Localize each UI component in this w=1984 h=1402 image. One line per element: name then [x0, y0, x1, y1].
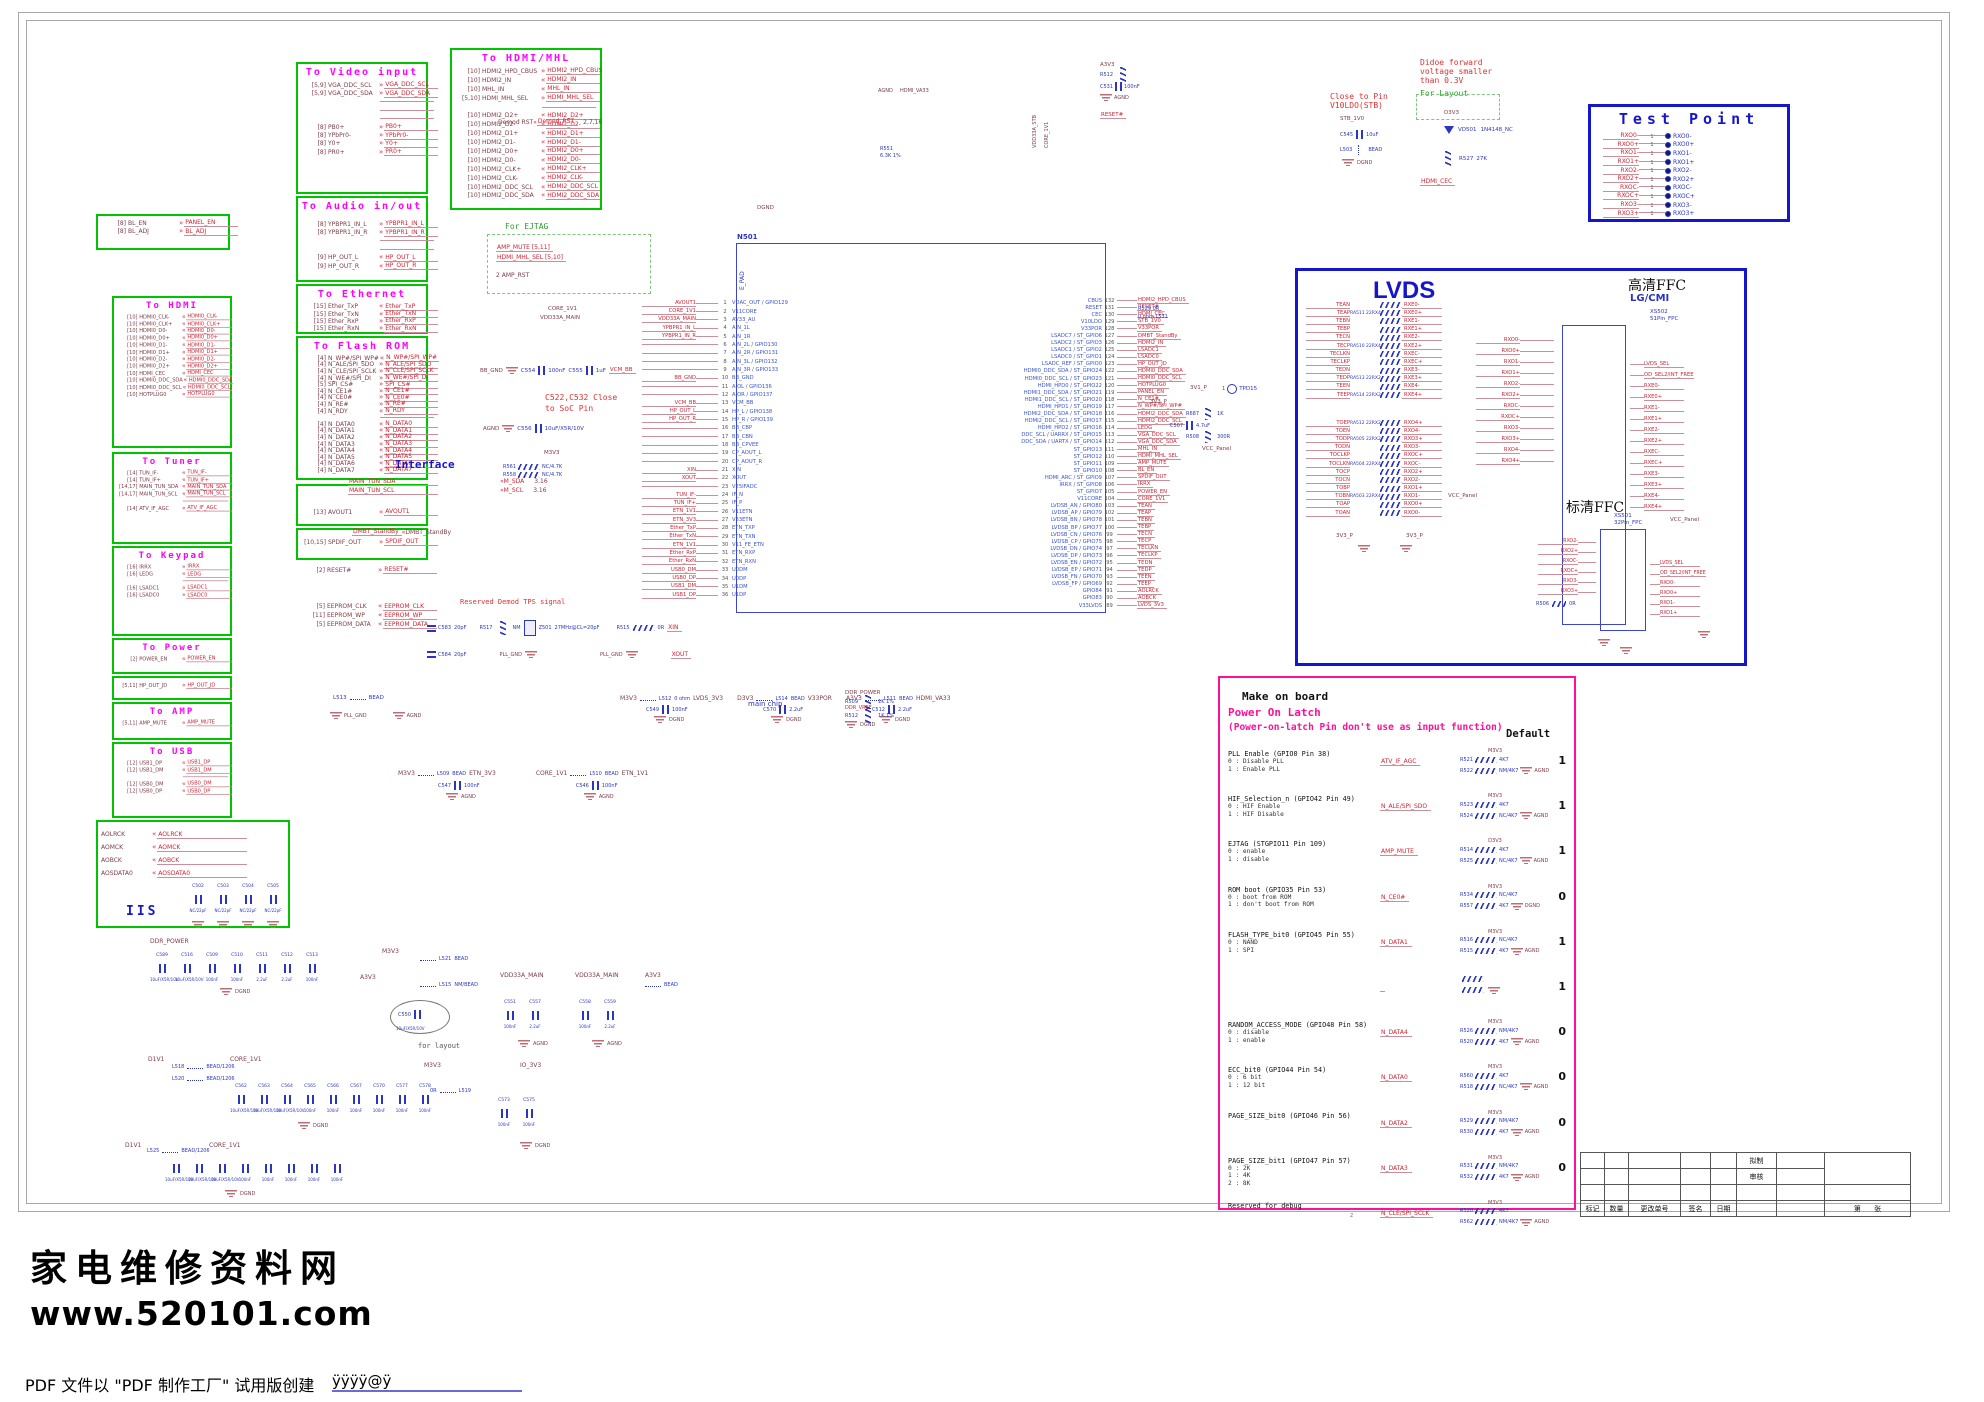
wire — [1117, 591, 1137, 592]
audio-box: To Audio in/out [8]YPBPR1_IN_L»YPBPR1_IN… — [296, 196, 428, 282]
resistor-icon — [1462, 987, 1484, 993]
hd-ffc-label: 高清FFC — [1628, 275, 1686, 295]
wire — [696, 586, 718, 587]
hdmi-rows: [10]HDMI0_CLK-«HDMI0_CLK-[10]HDMI0_CLK+«… — [114, 311, 211, 398]
signal-row: [10]HDMI0_DDC_SDA«HDMI0_DDC_SDA — [117, 377, 212, 384]
wire: 1 — [1639, 186, 1665, 189]
wire — [1650, 564, 1660, 565]
net-row: RXO3+ — [1538, 587, 1596, 597]
testpad-icon — [1665, 211, 1671, 217]
signal-row: [14]ATV_IF_AGC«ATV_IF_AGC — [117, 505, 212, 512]
interface-title: Interface — [395, 458, 455, 471]
chip-pin: HDMI_ARC / ST_GPIO9107SPDIF_OUT — [934, 474, 1189, 481]
bead-icon — [350, 696, 366, 700]
wire — [1117, 506, 1137, 507]
signal-row: [8]YPbPr0-»YPbPr0- — [301, 131, 426, 139]
sign-label: 签名 — [1681, 1201, 1711, 1217]
wire — [1520, 450, 1554, 451]
chip-pin: LVDSB_AN / GPIO80103TEAN — [934, 503, 1189, 510]
ground-icon — [626, 651, 638, 658]
lg-cmi-label: LG/CMI — [1630, 293, 1669, 304]
resistor-icon — [1475, 858, 1497, 864]
resistor-icon — [1380, 327, 1402, 333]
wire — [1520, 417, 1554, 418]
signal-row: [14]TUN_IF+«TUN_IF+ — [117, 477, 212, 484]
wire — [1630, 386, 1644, 387]
chip-pin: LVDSB_EN / GPIO7295TEDN — [934, 559, 1189, 566]
chip-pin: ST_GPIO12110HDMI_MHL_SEL — [934, 453, 1189, 460]
xs501-left-nets: RXO2-RXO2+RXOC-RXOC+RXO3-RXO3+ — [1538, 537, 1596, 597]
iis-rows: AOLRCK«AOLRCKAOMCK«AOMCKAOBCK«AOBCKAOSDA… — [98, 822, 288, 880]
net-row: RXO0- — [1650, 579, 1706, 589]
video-rows: [5,9]VGA_DDC_SCL»VGA_DDC_SCL[5,9]VGA_DDC… — [298, 78, 426, 157]
signal-row: [8]PB0+»PB0+ — [301, 123, 426, 131]
capacitor-icon — [245, 895, 252, 904]
signal-row: [10]HDMI2_D1-«HDMI2_D1- — [455, 138, 600, 147]
signal-row — [301, 237, 426, 245]
lvds-pair-row: TECLKPRXEC+ — [1306, 358, 1442, 366]
resistor-icon — [1380, 384, 1402, 390]
signal-row: [16]LSADC0»LSADC0 — [117, 592, 212, 599]
rail-filter: D3V3L514BEADV33POR C5702.2uF DGND — [737, 695, 832, 723]
lvds-pair-row: TOBPRXO1+ — [1306, 485, 1442, 493]
wire — [1117, 399, 1137, 400]
capacitor: 100nF — [326, 1158, 348, 1182]
resistor-icon — [500, 621, 506, 635]
lvds-pair-row: TOANRXO0- — [1306, 509, 1442, 517]
capacitor-icon — [334, 1164, 341, 1173]
wire — [696, 328, 718, 329]
ground-icon — [220, 988, 232, 995]
wire — [696, 478, 718, 479]
wire — [1520, 340, 1554, 341]
net-row: RXOC- — [1538, 557, 1596, 567]
capacitor-icon — [535, 424, 542, 433]
chip-pin: YPBPR1_IN_L4AIN_1L — [642, 324, 788, 332]
net-row: OD_SEL2/INT_FREE — [1650, 569, 1706, 579]
resistor-icon — [1475, 847, 1497, 853]
signal-row: [10]HDMI0_D1+«HDMI0_D1+ — [117, 349, 212, 356]
signal-row — [117, 578, 212, 585]
hp-out-jd-box: [5,11]HP_OUT_JD»HP_OUT_JD — [112, 676, 232, 700]
lvds-pair-row: TOEPRA512 22RX2RXO4+ — [1306, 419, 1442, 427]
signal-row: [14,17]MAIN_TUN_SCL«MAIN_TUN_SCL — [117, 491, 212, 498]
capacitor: C573100nF — [492, 1098, 516, 1127]
vdd33a-stb-label: VDD33A_STB — [1032, 96, 1038, 148]
wire — [1117, 406, 1137, 407]
wire — [1117, 314, 1137, 315]
testpad-icon — [1665, 168, 1671, 174]
bead-icon — [162, 1149, 178, 1153]
latch-option-item: 1 — [1228, 972, 1572, 1017]
ground-icon — [1400, 545, 1412, 552]
wire — [1117, 605, 1137, 606]
signal-row — [301, 98, 426, 106]
filters-row-b: M3V3L509BEADETN_3V3 C547100nF AGND CORE_… — [398, 770, 648, 800]
pullup-r1: R561NC/4.7K — [503, 464, 562, 470]
wire: 1 — [1639, 143, 1665, 146]
net-row: LVDS_SEL — [1650, 559, 1706, 569]
box-title: To Video input — [298, 64, 426, 78]
ground-icon — [502, 425, 514, 432]
capacitor-icon — [582, 1011, 589, 1020]
chip-pin: USB0_DM33U0DM — [642, 566, 788, 574]
diode-icon — [1444, 126, 1454, 134]
resistor-icon — [1205, 431, 1211, 443]
net-row: RXO3- — [1476, 423, 1554, 434]
resistor-icon — [1380, 461, 1402, 467]
capacitor-icon — [220, 895, 227, 904]
test-point-row: RXO1+1RXO1+ — [1603, 158, 1787, 167]
l531-label: 0 ohm L531 — [1138, 314, 1168, 320]
signal-row: [10]HDMI2_IN«HDMI2_IN — [455, 76, 600, 85]
below-chip-nets — [958, 628, 986, 696]
resistor-icon — [1552, 601, 1566, 607]
diode-cluster: Didoe forward voltage smaller than 0.3V … — [1420, 58, 1513, 187]
signal-row: [12]USB1_DM«USB1_DM — [117, 767, 212, 774]
signal-row: [11]EEPROM_WP«EEPROM_WP — [300, 611, 437, 620]
ground-icon — [1520, 812, 1532, 819]
resistor-icon — [633, 625, 655, 631]
resistor-icon — [1380, 318, 1402, 324]
ground-icon — [242, 921, 254, 928]
rail-filter: M3V3L509BEADETN_3V3 C547100nF AGND — [398, 770, 496, 800]
net-row: RXE4+ — [1630, 502, 1694, 513]
wire — [696, 511, 718, 512]
resistor-icon — [865, 709, 871, 723]
capacitor: C5572.2uF — [523, 1000, 547, 1029]
resistor-icon — [1380, 453, 1402, 459]
signal-row: [16]LEDG«LEDG — [117, 571, 212, 578]
resistor-icon — [1380, 335, 1402, 341]
wire — [696, 436, 718, 437]
signal-row: [10]HDMI2_CLK-«HDMI2_CLK- — [455, 174, 600, 183]
signal-row — [301, 245, 426, 253]
resistor-icon — [1462, 976, 1484, 982]
lvds-pair-row: TEBPRXE1+ — [1306, 326, 1442, 334]
wire — [696, 528, 718, 529]
net-row: RXE1- — [1630, 403, 1694, 414]
signal-row: [8]PR0+»PR0+ — [301, 148, 426, 156]
ground-icon — [393, 712, 405, 719]
ddr-cap-bank: DDR_POWER C58910uF/X5R/10VC51610uF/X5R/1… — [150, 938, 324, 995]
filters-row-a: M3V3L5120 ohmLVDS_3V3 C549100nF DGND D3V… — [620, 695, 951, 723]
for-layout-box — [1416, 94, 1500, 120]
signal-row: [8]BL_EN»PANEL_EN — [101, 219, 228, 227]
logo-chinese: 家电维修资料网 — [30, 1238, 373, 1292]
capacitor: 100nF — [280, 1158, 302, 1182]
ddr-vref: DDR_POWER R5091K 1% DDR_VREF R5121K 1% D… — [845, 690, 894, 728]
signal-row — [301, 106, 426, 114]
wire — [696, 369, 718, 370]
capacitor: 10uF/X5R/10V — [211, 1158, 233, 1182]
signal-row: [2]POWER_EN«POWER_EN — [117, 656, 212, 663]
lvds-pair-row: TOAPRXO0+ — [1306, 501, 1442, 509]
ejtag-dash-box — [487, 234, 651, 294]
chip-pin: XOUT22XOUT — [642, 474, 788, 482]
lvds-pair-row: TEEPRA514 22RX2RXE4+ — [1306, 391, 1442, 399]
to-power-box: To Power [2]POWER_EN«POWER_EN — [112, 638, 232, 674]
box-title: To Ethernet — [298, 286, 426, 300]
io3v3-caps: C573100nFC575100nF — [492, 1098, 541, 1127]
wire — [1630, 507, 1644, 508]
lvds-pair-row: TODPRA505 22RX2RXO3+ — [1306, 435, 1442, 443]
ground-icon — [1620, 647, 1632, 654]
wire — [1117, 392, 1137, 393]
resistor-icon — [1475, 1219, 1497, 1225]
box-title: To Audio in/out — [298, 198, 426, 212]
ground-icon — [1488, 987, 1500, 994]
net-row: RXO0+ — [1476, 346, 1554, 357]
wire — [696, 520, 718, 521]
wire: 1 — [1639, 195, 1665, 198]
lvds-pair-row: TOENRXO4- — [1306, 427, 1442, 435]
wire: 1 — [1639, 212, 1665, 215]
capacitor: C575100nF — [517, 1098, 541, 1127]
capacitor-icon — [454, 781, 461, 790]
lvds-pair-row: TECNRXE2- — [1306, 334, 1442, 342]
wire — [1520, 461, 1554, 462]
capacitor-icon — [196, 1164, 203, 1173]
signal-row: [12]USB0_DP«USB0_DP — [117, 788, 212, 795]
wire — [1117, 350, 1137, 351]
resistor-icon — [1475, 1208, 1497, 1214]
wire — [696, 561, 718, 562]
xs501-right-nets: LVDS_SELOD_SEL2/INT_FREERXO0-RXO0+RXO1-R… — [1650, 559, 1706, 619]
chip-pin: 8AIN_3L / GPIO132 — [642, 357, 788, 365]
keypad-rows: [16]IRRX»IRRX[16]LEDG«LEDG[16]LSADC1»LSA… — [114, 561, 211, 599]
ground-icon — [1358, 545, 1370, 552]
chip-pin: LVDSB_DP / GPIO7396TECLKP — [934, 552, 1189, 559]
lvds-pair-row: TEANRXE0- — [1306, 301, 1442, 309]
capacitor: C56310uF/X5R/10V — [253, 1084, 275, 1113]
box-title: To HDMI — [114, 298, 230, 311]
net-row: RXO2- — [1476, 379, 1554, 390]
testpad-icon — [1665, 142, 1671, 148]
wire — [696, 403, 718, 404]
latch-option-item: RANDOM_ACCESS_MODE (GPIO48 Pin 58)0 : di… — [1228, 1017, 1572, 1062]
ground-icon — [1520, 767, 1532, 774]
capacitor-icon — [607, 1011, 614, 1020]
capacitor: C509100nF — [200, 953, 224, 982]
wire — [1117, 463, 1137, 464]
wire — [696, 361, 718, 362]
signal-row: [14,17]MAIN_TUN_SDA«MAIN_TUN_SDA — [117, 484, 212, 491]
capacitor-icon — [311, 1164, 318, 1173]
ground-icon — [584, 793, 596, 800]
wire — [1520, 362, 1554, 363]
ground-icon — [1511, 1038, 1523, 1045]
net-row: RXO0- — [1476, 335, 1554, 346]
site-logo: 家电维修资料网 www.520101.com — [30, 1238, 373, 1333]
testpad-icon — [1665, 159, 1671, 165]
lvds-pair-row: TOBNRA503 22RX4RXO1- — [1306, 493, 1442, 501]
iis-box: AOLRCK«AOLRCKAOMCK«AOMCKAOBCK«AOBCKAOSDA… — [96, 820, 290, 928]
resistor-icon — [1120, 67, 1126, 83]
wire — [1117, 300, 1137, 301]
capacitor: C5112.2uF — [250, 953, 274, 982]
signal-row: [10]HOTPLUG0«HOTPLUG0 — [117, 391, 212, 398]
wire: 1 — [1639, 152, 1665, 155]
chip-pin: GPIO8491AOLRCK — [934, 588, 1189, 595]
wire — [1650, 584, 1660, 585]
wire — [696, 386, 718, 387]
capacitor: C570100nF — [368, 1084, 390, 1113]
ground-icon — [518, 1040, 530, 1047]
resistor-icon — [518, 464, 540, 470]
net-row: RXO2- — [1538, 537, 1596, 547]
wire — [696, 319, 718, 320]
wire: 1 — [1639, 161, 1665, 164]
mob-heading: Make on board — [1242, 690, 1328, 703]
testpad-icon — [1665, 133, 1671, 139]
capacitor-icon — [501, 1109, 508, 1118]
ground-icon — [1511, 948, 1523, 955]
wire — [696, 336, 718, 337]
chip-pin: GPIO8390AOBCK — [934, 595, 1189, 602]
ethernet-box: To Ethernet [15]Ether_TxP«Ether_TxP[15]E… — [296, 284, 428, 334]
wire — [696, 411, 718, 412]
lvds-pair-row: TOCLKNRA504 22RX4RXOC- — [1306, 460, 1442, 468]
bead-icon — [418, 772, 434, 776]
latch-option-item: PAGE_SIZE_bit1 (GPIO47 Pin 57)0 : 2K 1 :… — [1228, 1153, 1572, 1198]
wire — [1117, 555, 1137, 556]
test-point-row: RXO2+1RXO2+ — [1603, 175, 1787, 184]
resistor-icon — [1475, 1028, 1497, 1034]
signal-row: [10]HDMI0_CLK+«HDMI0_CLK+ — [117, 321, 212, 328]
capacitor: C504NC/22pF — [236, 884, 260, 932]
wire — [1117, 598, 1137, 599]
signal-row: [10]HDMI0_D0+«HDMI0_D0+ — [117, 335, 212, 342]
chip-pin: ETN_1V130V11_FE_ETN — [642, 541, 788, 549]
bead-icon — [756, 697, 772, 701]
net-row: RXO4+ — [1476, 456, 1554, 467]
latch-option-item: PAGE_SIZE_bit0 (GPIO46 Pin 56) N_DATA2 M… — [1228, 1108, 1572, 1153]
signal-row — [117, 498, 212, 505]
bbgnd-row: BB_GND C554100nF C5551uF VCM_BB — [480, 366, 636, 375]
capacitor-icon — [195, 895, 202, 904]
test-point-rows: RXO0-1RXO0-RXO0+1RXO0+RXO1-1RXO1-RXO1+1R… — [1591, 128, 1787, 218]
rail-vdd: VDD33A_MAIN — [540, 315, 580, 321]
wire — [1117, 343, 1137, 344]
date-label: 日期 — [1711, 1201, 1737, 1217]
ground-icon — [217, 921, 229, 928]
testpad-icon — [1665, 150, 1671, 156]
capacitor-icon — [242, 1164, 249, 1173]
net-row: RXOC+ — [1538, 567, 1596, 577]
capacitor-icon — [330, 1095, 337, 1104]
resistor-icon — [1475, 1163, 1497, 1169]
wire — [1117, 442, 1137, 443]
resistor-icon — [1380, 351, 1402, 357]
wire — [1117, 357, 1137, 358]
chip-pin: ST_GPIO10108BL_EN — [934, 467, 1189, 474]
wire — [1520, 384, 1554, 385]
logo-url: www.520101.com — [30, 1294, 373, 1333]
ground-icon — [267, 921, 279, 928]
box-title: To Keypad — [114, 548, 230, 561]
wire — [696, 311, 718, 312]
chip-pin: ST_GPIO7105POWER_EN — [934, 489, 1189, 496]
chip-pin: USB1_DM35U1DM — [642, 583, 788, 591]
rail-core: CORE_1V1 — [548, 306, 577, 312]
signal-row: [8]BL_ADJ»BL_ADJ — [101, 227, 228, 235]
chip-pin: CORE_1V12V11CORE — [642, 307, 788, 315]
signal-row: [5,11]AMP_MUTE«AMP_MUTE — [117, 720, 212, 727]
chip-pin: V33LVDS89LVDS_3V3 — [934, 602, 1189, 609]
capacitor: 10uF/X5R/10V — [188, 1158, 210, 1182]
bead-icon — [420, 957, 436, 961]
wire: 1 — [1639, 135, 1665, 138]
wire — [696, 461, 718, 462]
ground-icon — [1342, 159, 1354, 166]
vcc-panel-label2: VCC_Panel — [1670, 517, 1699, 523]
chip-pin: Ether_RxP31ETN_RXP — [642, 549, 788, 557]
signal-row: [10]HDMI2_DDC_SCL«HDMI2_DDC_SCL — [455, 183, 600, 192]
wire — [1117, 541, 1137, 542]
latch-option-item: EJTAG (STGPIO11 Pin 109)0 : enable 1 : d… — [1228, 836, 1572, 881]
signal-row: [12]USB0_DM«USB0_DM — [117, 781, 212, 788]
ground-icon — [330, 712, 342, 719]
chip-pin: VCM_BB13VCM_BB — [642, 399, 788, 407]
capacitor-icon — [184, 964, 191, 973]
wire — [696, 445, 718, 446]
chip-pin: TUN_IF+25IF_P — [642, 499, 788, 507]
wire — [1578, 562, 1596, 563]
wire — [1630, 441, 1644, 442]
chip-pin: 6AIN_2L / GPIO130 — [642, 341, 788, 349]
net-row: RXE2+ — [1630, 436, 1694, 447]
chip-bottom-pins — [746, 617, 778, 695]
bl-rows: [8]BL_EN»PANEL_EN[8]BL_ADJ»BL_ADJ — [98, 216, 228, 236]
latch-option-item: PLL Enable (GPIO0 Pin 38)0 : Disable PLL… — [1228, 746, 1572, 791]
capacitor-icon — [173, 1164, 180, 1173]
capacitor-icon — [284, 964, 291, 973]
chip-pin: AVOUT11VDAC_OUT / GPIO129 — [642, 299, 788, 307]
wire — [1650, 594, 1660, 595]
chip-pin: ETN_1V126V11ETN — [642, 508, 788, 516]
capacitor-icon — [261, 1095, 268, 1104]
l513-gnds: PLL_GND AGND — [330, 712, 421, 719]
chip-pin: ETN_3V327V33ETN — [642, 516, 788, 524]
testpad-icon — [1665, 185, 1671, 191]
mark-label: 标记 — [1581, 1201, 1605, 1217]
wire — [1520, 373, 1554, 374]
eeprom-rows: [5]EEPROM_CLK«EEPROM_CLK[11]EEPROM_WP«EE… — [300, 602, 437, 629]
video-input-box: To Video input [5,9]VGA_DDC_SCL»VGA_DDC_… — [296, 62, 428, 194]
chip-pin: LVDSB_CN / GPIO7699TECN — [934, 531, 1189, 538]
latch-option-item: HIF_Selection_n (GPIO42 Pin 49)0 : HIF E… — [1228, 791, 1572, 836]
wire: 1 — [1639, 178, 1665, 181]
capacitor: C565100nF — [299, 1084, 321, 1113]
pdf-email-link[interactable]: ÿÿÿÿ@ÿ — [332, 1372, 522, 1392]
resistor-icon — [1380, 477, 1402, 483]
chip-pin: USB0_DP34U0DP — [642, 574, 788, 582]
ground-icon — [1520, 1083, 1532, 1090]
hdmi-va33-label: HDMI_VA33 — [900, 88, 929, 94]
signal-row: [5]EEPROM_DATA«EEPROM_DATA — [300, 620, 437, 629]
test-point-row: RXO2-1RXO2- — [1603, 166, 1787, 175]
ejtag-net2: HDMI_MHL_SEL [5,10] — [496, 254, 566, 262]
sheet-label: 第 张 — [1825, 1201, 1911, 1217]
capacitor: C510100nF — [225, 953, 249, 982]
ground-icon — [1520, 1219, 1532, 1226]
lvds-pair-row: TEDPRA513 22RX2RXE3+ — [1306, 375, 1442, 383]
net-row: RXE1+ — [1630, 414, 1694, 425]
lvds-pair-row: TOCLKPRXOC+ — [1306, 452, 1442, 460]
xtal-cluster: C58320pF R517NM Z50127MHz@CL=20pF R5150R… — [428, 620, 691, 659]
box-title: To USB — [114, 744, 230, 757]
